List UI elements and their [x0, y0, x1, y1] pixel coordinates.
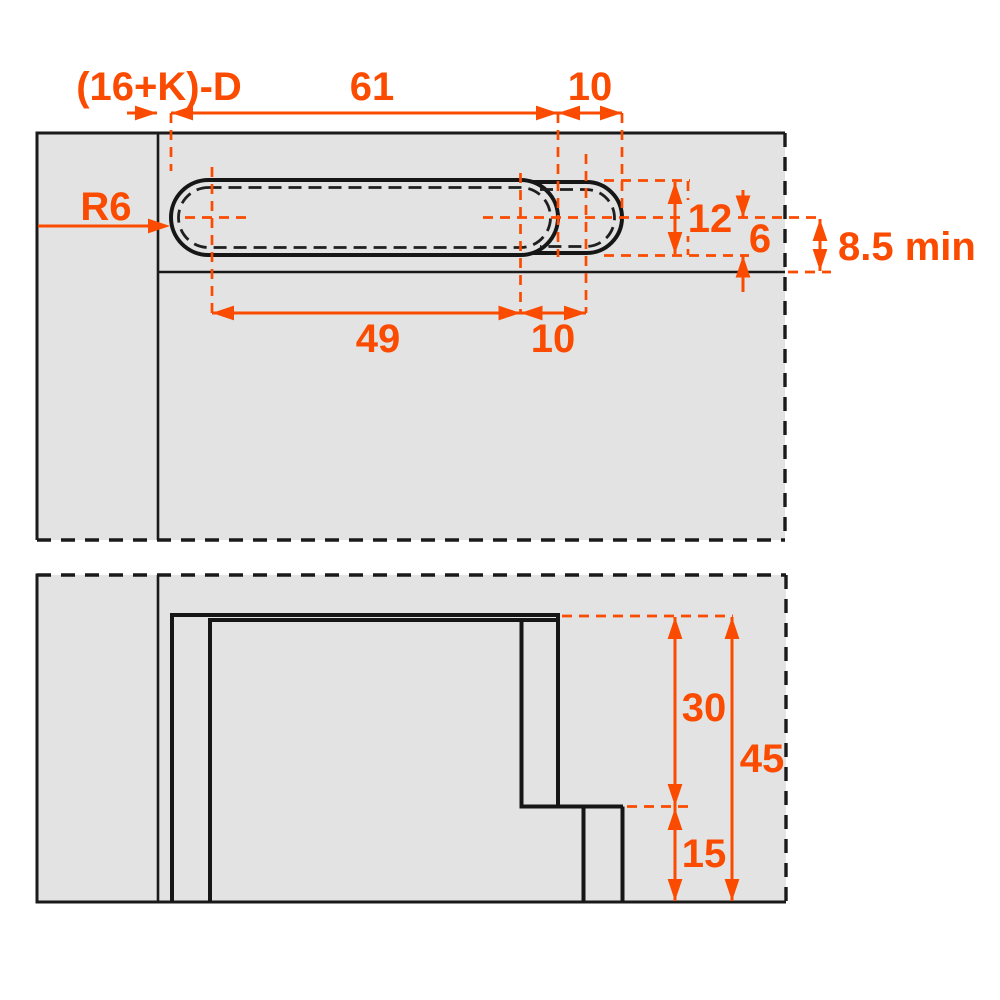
dim-label-centers-step: 10 [531, 317, 576, 361]
dim-label-outer-step: 10 [568, 65, 613, 109]
dim-arrowhead [813, 219, 828, 241]
dim-label-slot-width: 12 [688, 197, 733, 241]
drawing-canvas: (16+K)-D 61 10 R6 12 6 8.5 min 49 10 [0, 0, 1000, 1000]
dim-label-depth-total: 45 [740, 737, 785, 781]
section-view: 30 45 15 [36, 574, 787, 903]
dim-label-outer-length: 61 [350, 65, 395, 109]
radius-label: R6 [80, 185, 131, 229]
dim-arrowhead [536, 106, 558, 121]
dim-label-depth-upper: 30 [682, 686, 727, 730]
dim-arrowhead [813, 249, 828, 271]
dim-label-edge-min: 8.5 min [838, 225, 976, 269]
dim-label-centers-length: 49 [356, 317, 401, 361]
top-view: (16+K)-D 61 10 R6 12 6 8.5 min 49 10 [36, 65, 976, 540]
technical-drawing: (16+K)-D 61 10 R6 12 6 8.5 min 49 10 [0, 0, 1000, 1000]
dim-label-depth-lower: 15 [682, 832, 727, 876]
dim-label-offset: (16+K)-D [76, 65, 242, 109]
dim-label-half-width: 6 [749, 217, 771, 261]
